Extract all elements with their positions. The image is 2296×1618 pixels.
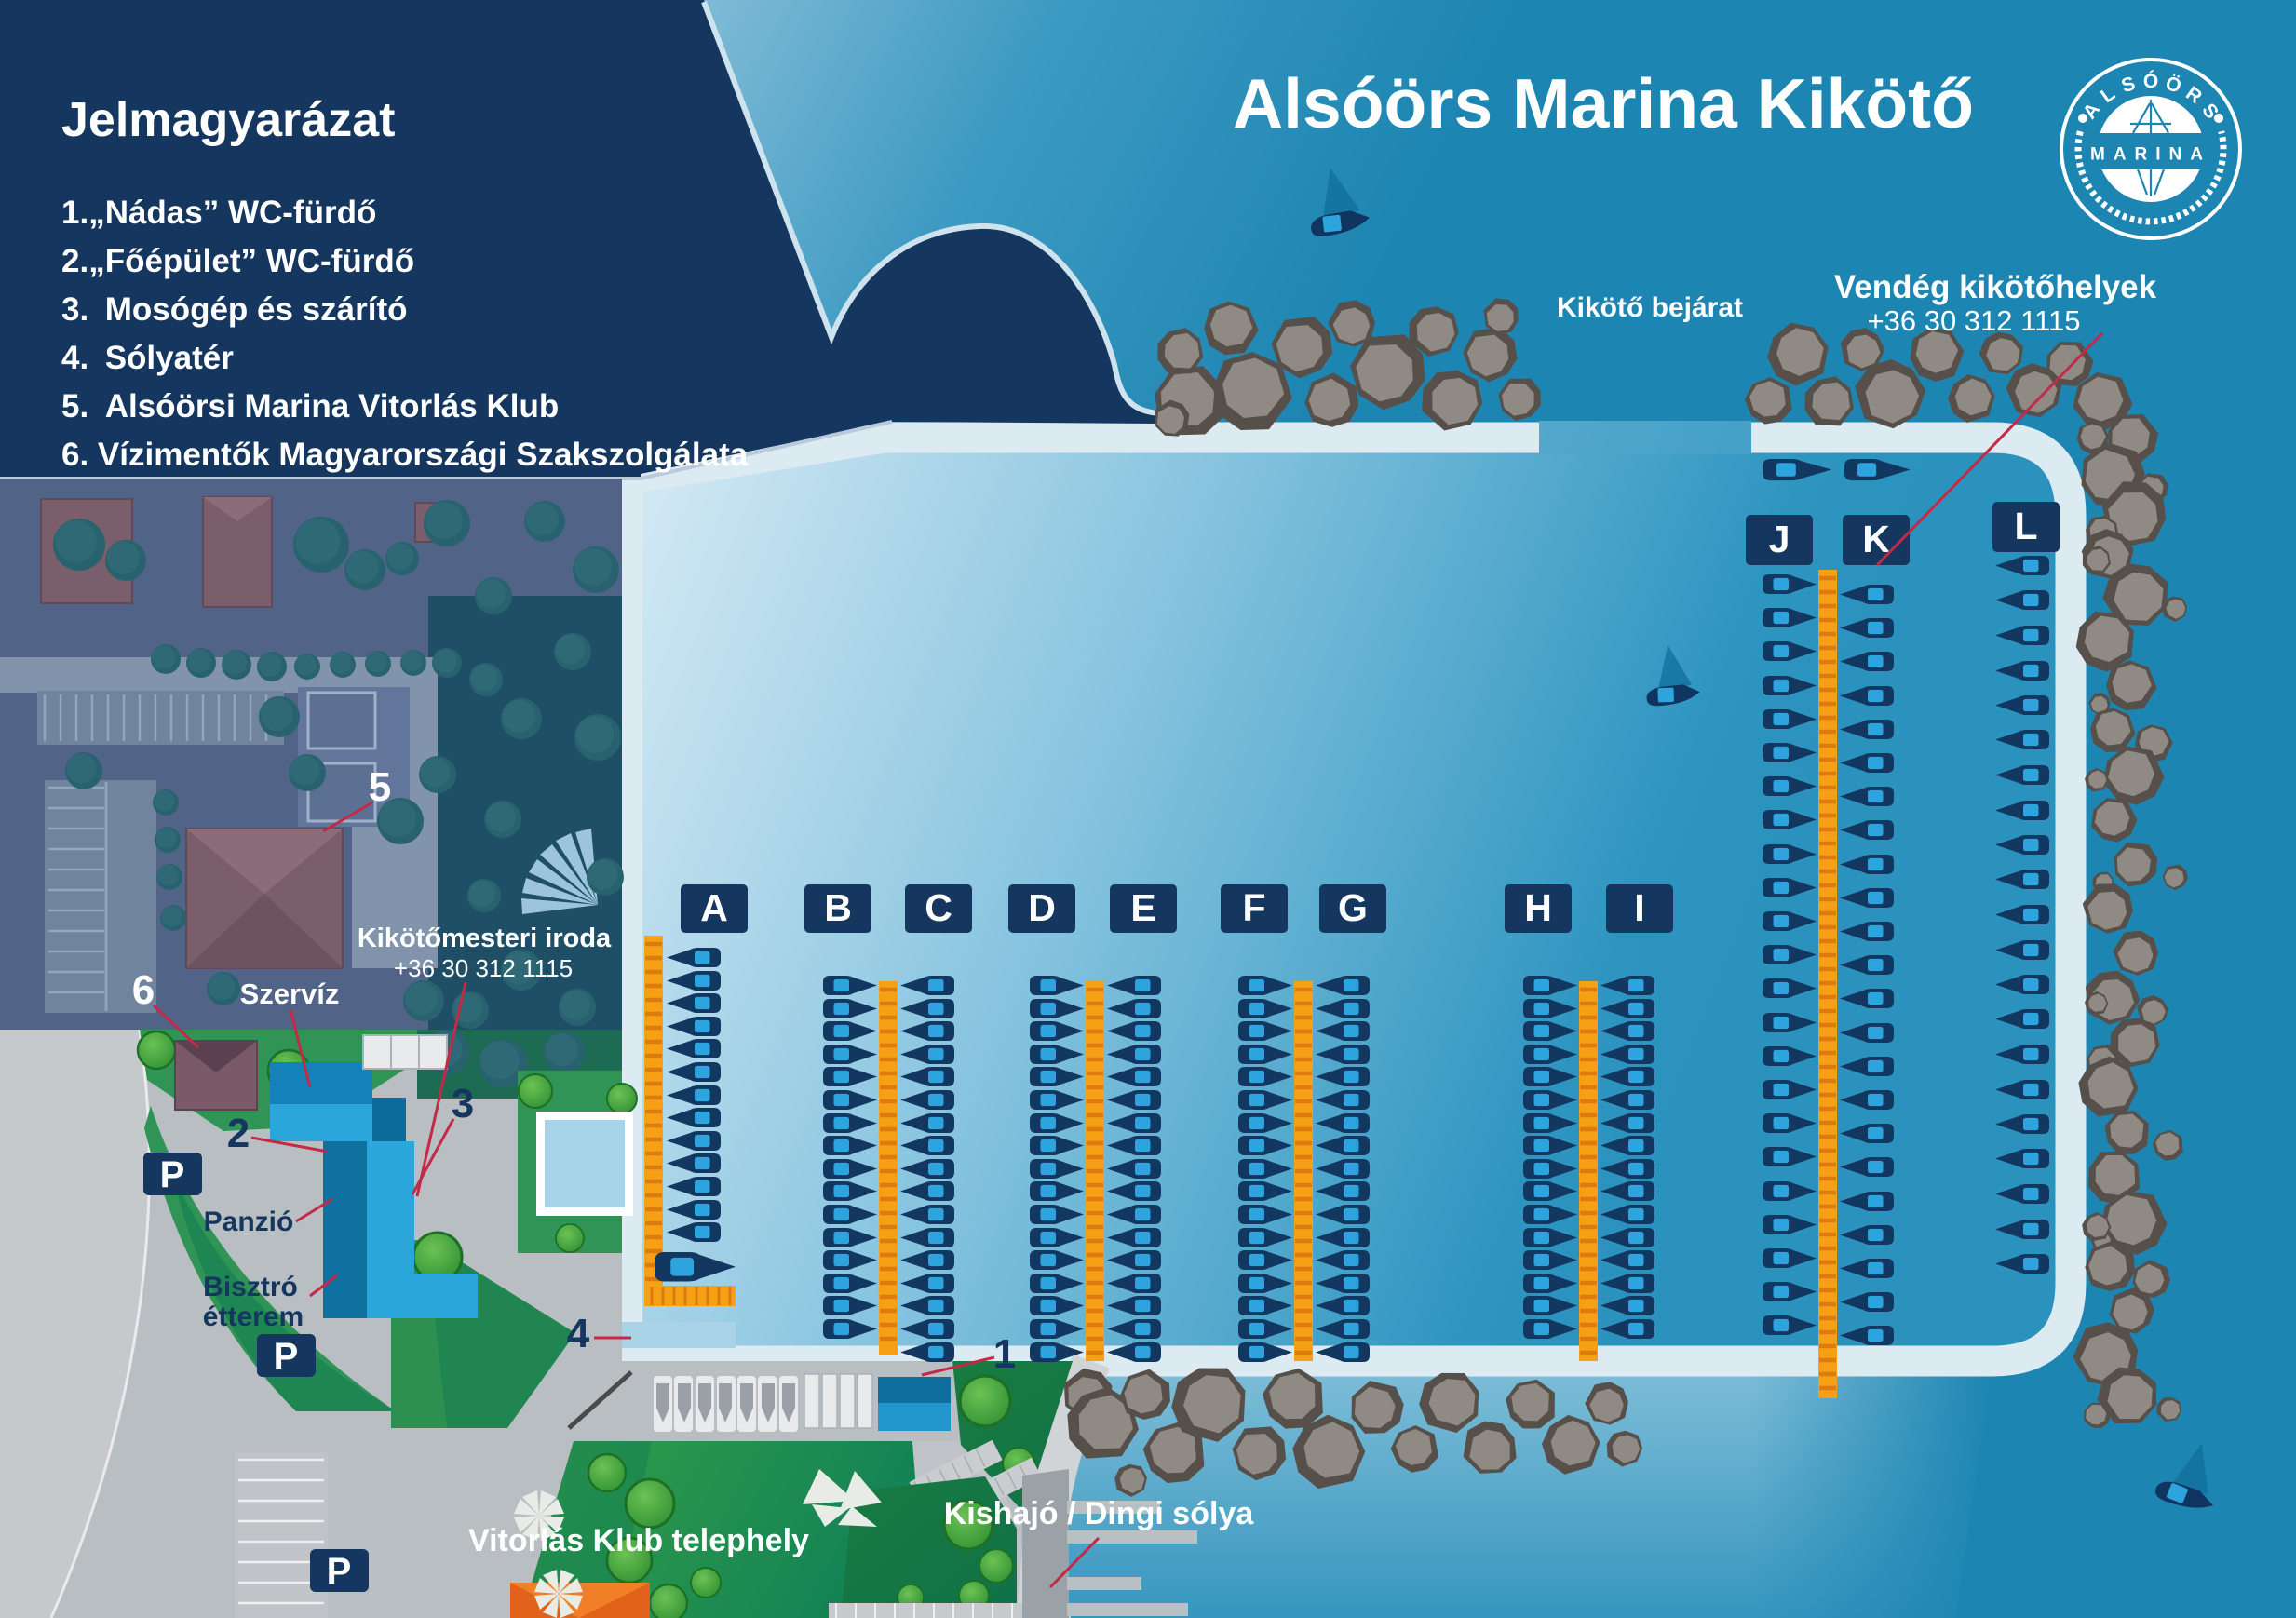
svg-text:P: P xyxy=(274,1336,299,1377)
svg-text:6: 6 xyxy=(132,967,155,1013)
svg-text:G: G xyxy=(1338,886,1368,929)
svg-text:MARINA: MARINA xyxy=(2090,145,2211,165)
svg-text:Bisztró: Bisztró xyxy=(203,1272,298,1302)
svg-text:Panzió: Panzió xyxy=(204,1207,294,1237)
svg-text:Szervíz: Szervíz xyxy=(240,978,340,1010)
svg-text:P: P xyxy=(160,1154,185,1195)
svg-text:H: H xyxy=(1524,886,1552,929)
svg-text:étterem: étterem xyxy=(203,1301,304,1332)
svg-text:Kikötőmesteri iroda: Kikötőmesteri iroda xyxy=(358,924,612,953)
svg-text:2.„Főépület” WC-fürdő: 2.„Főépület” WC-fürdő xyxy=(61,243,414,279)
svg-text:Vendég kikötőhelyek: Vendég kikötőhelyek xyxy=(1834,269,2157,305)
svg-text:+36 30 312 1115: +36 30 312 1115 xyxy=(1868,304,2081,337)
svg-text:4: 4 xyxy=(567,1311,590,1356)
svg-text:Vitorlás Klub telephely: Vitorlás Klub telephely xyxy=(468,1523,809,1558)
svg-text:D: D xyxy=(1028,886,1056,929)
svg-text:Kishajó / Dingi sólya: Kishajó / Dingi sólya xyxy=(944,1496,1255,1531)
svg-text:L: L xyxy=(2014,505,2037,547)
svg-text:1: 1 xyxy=(993,1331,1016,1377)
svg-text:5: 5 xyxy=(369,764,391,810)
svg-text:J: J xyxy=(1769,518,1790,560)
svg-text:F: F xyxy=(1242,886,1265,929)
svg-text:E: E xyxy=(1130,886,1155,929)
svg-text:2: 2 xyxy=(227,1111,250,1156)
svg-text:B: B xyxy=(824,886,852,929)
svg-text:4. Sólyatér: 4. Sólyatér xyxy=(61,340,234,376)
svg-text:3. Mosógép és szárító: 3. Mosógép és szárító xyxy=(61,291,407,328)
svg-text:P: P xyxy=(327,1551,352,1592)
svg-text:C: C xyxy=(925,886,952,929)
svg-text:I: I xyxy=(1634,886,1644,929)
svg-text:3: 3 xyxy=(452,1081,474,1126)
svg-text:Ó: Ó xyxy=(2143,70,2158,92)
svg-text:5. Alsóörsi Marina Vitorlás Kl: 5. Alsóörsi Marina Vitorlás Klub xyxy=(61,388,559,425)
svg-text:+36 30 312 1115: +36 30 312 1115 xyxy=(394,954,573,982)
svg-text:A: A xyxy=(700,886,728,929)
svg-text:Kikötő bejárat: Kikötő bejárat xyxy=(1557,292,1743,323)
svg-text:6. Vízimentők Magyarországi Sz: 6. Vízimentők Magyarországi Szakszolgála… xyxy=(61,437,749,473)
svg-text:1.„Nádas” WC-fürdő: 1.„Nádas” WC-fürdő xyxy=(61,195,376,231)
svg-text:Alsóörs Marina Kikötő: Alsóörs Marina Kikötő xyxy=(1233,64,1974,142)
svg-text:Jelmagyarázat: Jelmagyarázat xyxy=(61,93,395,147)
